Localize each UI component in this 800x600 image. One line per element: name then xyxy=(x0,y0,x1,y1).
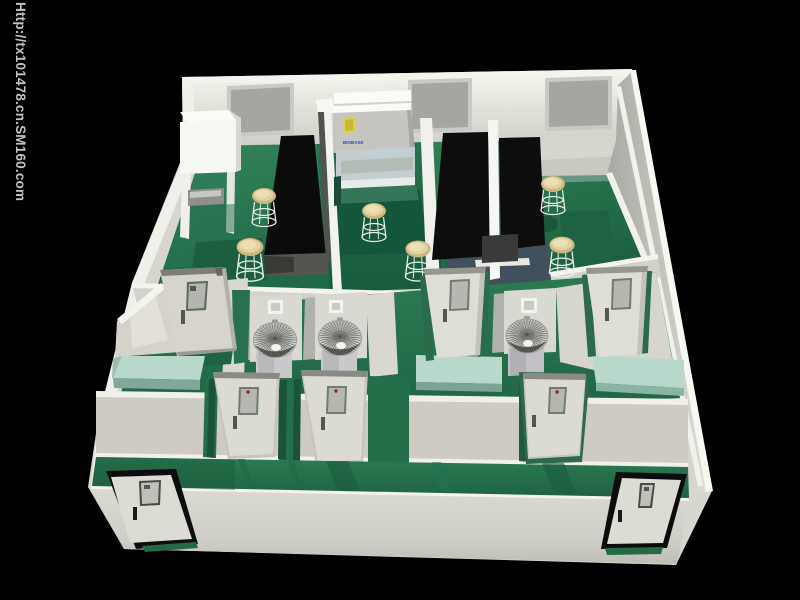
svg-text:BIOBASE: BIOBASE xyxy=(343,140,364,145)
svg-text:Http://tx101478.cn.SM160.com: Http://tx101478.cn.SM160.com xyxy=(13,2,28,201)
